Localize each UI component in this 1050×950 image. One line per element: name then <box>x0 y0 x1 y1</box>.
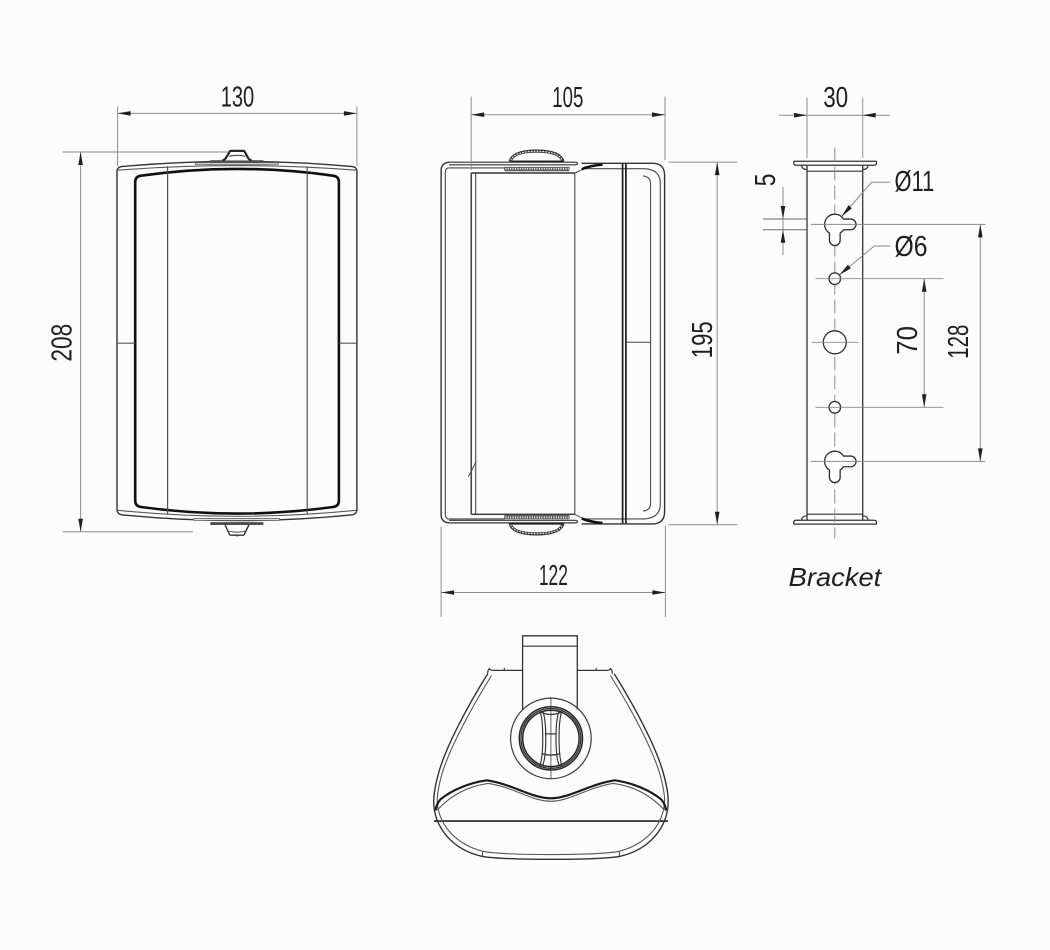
svg-text:Ø11: Ø11 <box>895 166 935 198</box>
svg-text:105: 105 <box>552 82 583 114</box>
svg-text:30: 30 <box>823 82 848 114</box>
svg-text:70: 70 <box>892 326 924 355</box>
svg-text:195: 195 <box>687 321 719 358</box>
svg-text:128: 128 <box>943 325 975 359</box>
svg-text:Bracket: Bracket <box>789 562 883 592</box>
svg-text:130: 130 <box>221 82 255 114</box>
svg-text:Ø6: Ø6 <box>895 231 928 263</box>
svg-text:122: 122 <box>539 560 568 592</box>
svg-text:5: 5 <box>750 174 782 187</box>
svg-text:208: 208 <box>46 324 78 362</box>
